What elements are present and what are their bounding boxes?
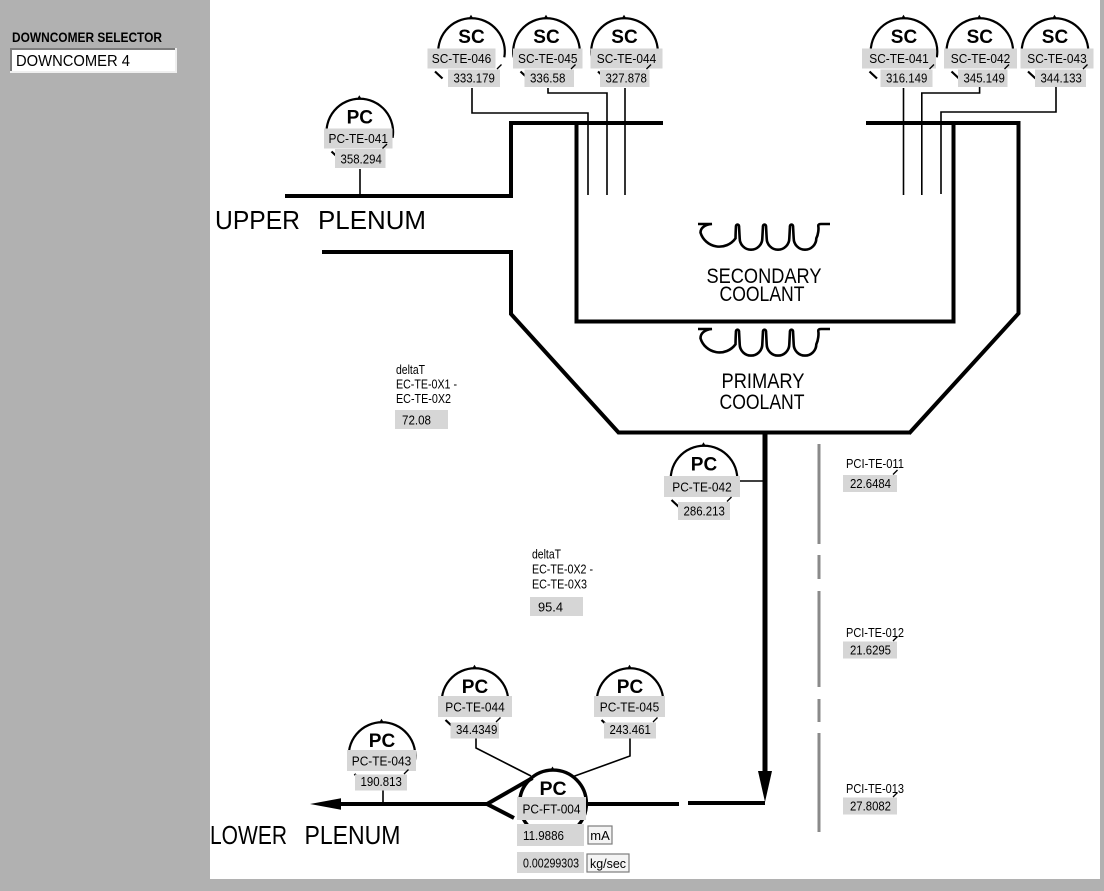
svg-text:SC-TE-045: SC-TE-045: [518, 51, 577, 66]
svg-text:PC: PC: [369, 731, 396, 752]
svg-text:deltaT: deltaT: [532, 548, 561, 562]
svg-text:PC-TE-045: PC-TE-045: [600, 700, 659, 715]
svg-text:DOWNCOMER 4: DOWNCOMER 4: [16, 53, 130, 70]
svg-text:COOLANT: COOLANT: [720, 391, 805, 414]
svg-text:PCI-TE-012: PCI-TE-012: [846, 625, 904, 640]
svg-text:EC-TE-0X2 -: EC-TE-0X2 -: [532, 563, 593, 577]
svg-text:286.213: 286.213: [684, 504, 725, 519]
svg-text:190.813: 190.813: [361, 774, 402, 789]
svg-text:27.8082: 27.8082: [850, 799, 891, 814]
svg-text:358.294: 358.294: [341, 152, 382, 167]
svg-text:PC-TE-043: PC-TE-043: [352, 754, 411, 769]
svg-text:deltaT: deltaT: [396, 363, 425, 377]
svg-text:COOLANT: COOLANT: [720, 283, 805, 306]
svg-text:327.878: 327.878: [606, 71, 647, 86]
svg-text:336.58: 336.58: [530, 71, 565, 86]
svg-text:SC: SC: [533, 27, 560, 48]
svg-text:PC-TE-041: PC-TE-041: [329, 131, 388, 146]
svg-text:EC-TE-0X3: EC-TE-0X3: [532, 578, 587, 592]
svg-text:0.00299303: 0.00299303: [523, 856, 579, 871]
svg-text:LOWER: LOWER: [210, 822, 287, 850]
svg-text:PC: PC: [691, 455, 718, 476]
svg-text:SC: SC: [611, 27, 638, 48]
svg-text:22.6484: 22.6484: [850, 476, 891, 491]
svg-text:PCI-TE-013: PCI-TE-013: [846, 781, 904, 796]
svg-text:PLENUM: PLENUM: [305, 822, 401, 850]
svg-text:EC-TE-0X1 -: EC-TE-0X1 -: [396, 378, 457, 392]
svg-text:SC: SC: [458, 27, 485, 48]
svg-text:72.08: 72.08: [402, 413, 431, 428]
svg-text:SC-TE-041: SC-TE-041: [869, 51, 928, 66]
svg-text:PC-FT-004: PC-FT-004: [523, 802, 581, 817]
svg-text:PC-TE-042: PC-TE-042: [672, 480, 731, 495]
svg-text:PRIMARY: PRIMARY: [722, 370, 805, 393]
svg-text:PC: PC: [347, 108, 374, 129]
svg-text:SC: SC: [967, 27, 994, 48]
svg-text:PC: PC: [617, 677, 644, 698]
svg-text:11.9886: 11.9886: [523, 828, 564, 843]
svg-text:PC-TE-044: PC-TE-044: [445, 700, 504, 715]
svg-text:SC: SC: [1042, 27, 1069, 48]
svg-text:333.179: 333.179: [454, 71, 495, 86]
svg-text:345.149: 345.149: [964, 71, 1005, 86]
svg-text:PC: PC: [539, 778, 566, 800]
svg-text:243.461: 243.461: [610, 722, 651, 737]
svg-text:316.149: 316.149: [886, 71, 927, 86]
svg-text:SC-TE-046: SC-TE-046: [432, 51, 491, 66]
svg-text:SC-TE-044: SC-TE-044: [597, 51, 656, 66]
svg-text:SC-TE-042: SC-TE-042: [951, 51, 1010, 66]
svg-text:SC-TE-043: SC-TE-043: [1027, 51, 1086, 66]
svg-text:DOWNCOMER SELECTOR: DOWNCOMER SELECTOR: [12, 30, 162, 45]
svg-text:21.6295: 21.6295: [850, 643, 891, 658]
svg-text:kg/sec: kg/sec: [590, 856, 626, 871]
svg-text:SC: SC: [891, 27, 918, 48]
svg-text:95.4: 95.4: [538, 600, 563, 615]
svg-text:344.133: 344.133: [1041, 71, 1082, 86]
svg-text:PCI-TE-011: PCI-TE-011: [846, 456, 904, 471]
svg-text:UPPER: UPPER: [215, 205, 300, 235]
svg-text:mA: mA: [590, 828, 610, 843]
svg-text:34.4349: 34.4349: [456, 722, 497, 737]
svg-text:PLENUM: PLENUM: [318, 205, 426, 235]
svg-text:EC-TE-0X2: EC-TE-0X2: [396, 392, 451, 406]
svg-text:PC: PC: [462, 677, 489, 698]
